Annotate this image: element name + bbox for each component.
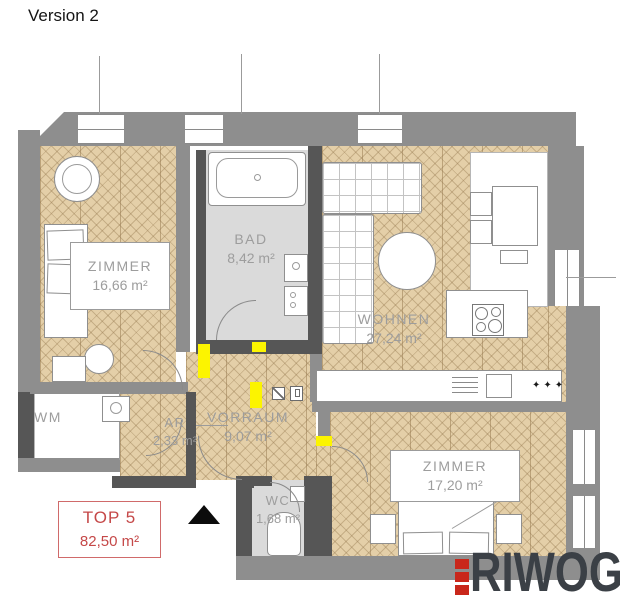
- door-arc: [143, 350, 183, 390]
- kitchen-sink: [486, 374, 512, 398]
- armchair-cushion: [62, 164, 92, 194]
- room-name: ZIMMER: [88, 257, 152, 276]
- wall-zimmer1-right: [176, 146, 190, 352]
- riwog-logo: RIWOG: [450, 540, 620, 600]
- room-name: WM: [34, 408, 76, 427]
- washbasin-unit: [284, 286, 308, 316]
- room-label-ar: AR 2,33 m²: [125, 414, 225, 449]
- electrical-box-icon: [272, 387, 285, 400]
- unit-area: 82,50 m²: [80, 531, 139, 553]
- room-label-wm: WM: [34, 408, 76, 427]
- room-label-bad: BAD 8,42 m²: [206, 230, 296, 268]
- wall-wohnen-zimmer2: [312, 402, 566, 412]
- room-name: BAD: [206, 230, 296, 249]
- sofa: [322, 162, 422, 214]
- room-name: WC: [248, 492, 308, 510]
- dining-table: [492, 186, 538, 246]
- room-label-wc: WC 1,68 m²: [248, 492, 308, 527]
- axis-line: [379, 54, 380, 114]
- logo-square-icon: [455, 585, 469, 595]
- room-area: 1,68 m²: [248, 510, 308, 528]
- room-name: AR: [125, 414, 225, 432]
- logo-square-icon: [455, 572, 469, 582]
- chair: [470, 220, 492, 244]
- room-area: 17,20 m²: [427, 476, 482, 495]
- room-area: 16,66 m²: [92, 276, 147, 295]
- burner: [475, 307, 488, 320]
- wall-wm-bottom: [18, 458, 120, 472]
- counter-marks: ✦✦✦: [532, 380, 566, 391]
- electrical-flag-icon: [295, 389, 300, 397]
- burner: [476, 322, 486, 332]
- highlight-wall: [250, 382, 262, 408]
- window: [358, 114, 402, 144]
- room-label-box-zimmer1: ZIMMER 16,66 m²: [70, 242, 170, 310]
- axis-line: [566, 277, 616, 278]
- bathtub-drain: [254, 174, 261, 181]
- fixture-knob: [290, 292, 296, 298]
- fixture-knob: [290, 302, 296, 308]
- entrance-arrow-icon: [188, 505, 220, 524]
- room-area: 2,33 m²: [125, 432, 225, 450]
- logo-text: RIWOG: [470, 546, 620, 598]
- wall-left: [18, 130, 40, 392]
- axis-line: [99, 56, 100, 114]
- highlight-wall: [198, 344, 210, 378]
- wall-zimmer2-left: [318, 476, 332, 560]
- pillow: [403, 532, 443, 555]
- wall-ar-bottom: [112, 476, 196, 488]
- room-area: 8,42 m²: [206, 249, 296, 268]
- wall-left-dark: [18, 392, 34, 466]
- room-name: ZIMMER: [423, 457, 487, 476]
- unit-title: TOP 5: [83, 506, 137, 531]
- wall-wc-top: [252, 476, 272, 486]
- window: [185, 114, 223, 144]
- unit-badge: TOP 5 82,50 m²: [58, 501, 161, 558]
- wall-bad-left: [196, 150, 206, 352]
- burner: [491, 307, 501, 317]
- washing-machine-door: [110, 402, 122, 414]
- floor-plan: Version 2: [0, 0, 620, 600]
- axis-line: [241, 54, 242, 114]
- coffee-table: [378, 232, 436, 290]
- room-label-wohnen: WOHNEN 27,24 m²: [344, 310, 444, 348]
- window: [554, 250, 580, 306]
- dresser: [52, 356, 86, 382]
- dishwasher-vents: [452, 377, 478, 395]
- stool: [84, 344, 114, 374]
- room-name: WOHNEN: [344, 310, 444, 329]
- nightstand: [370, 514, 396, 544]
- highlight-wall: [252, 342, 266, 352]
- highlight-wall: [316, 436, 332, 446]
- window: [78, 114, 124, 144]
- chair: [470, 192, 492, 216]
- window: [572, 430, 596, 484]
- burner: [488, 319, 502, 333]
- kitchen-counter: [316, 370, 562, 402]
- room-area: 27,24 m²: [344, 329, 444, 348]
- wall-zimmer2-left-top: [318, 412, 330, 436]
- logo-square-icon: [455, 559, 469, 569]
- chair: [500, 250, 528, 264]
- version-label: Version 2: [28, 6, 99, 26]
- wall-bad-right: [308, 146, 322, 354]
- room-label-box-zimmer2: ZIMMER 17,20 m²: [390, 450, 520, 502]
- door-threshold: [316, 446, 330, 476]
